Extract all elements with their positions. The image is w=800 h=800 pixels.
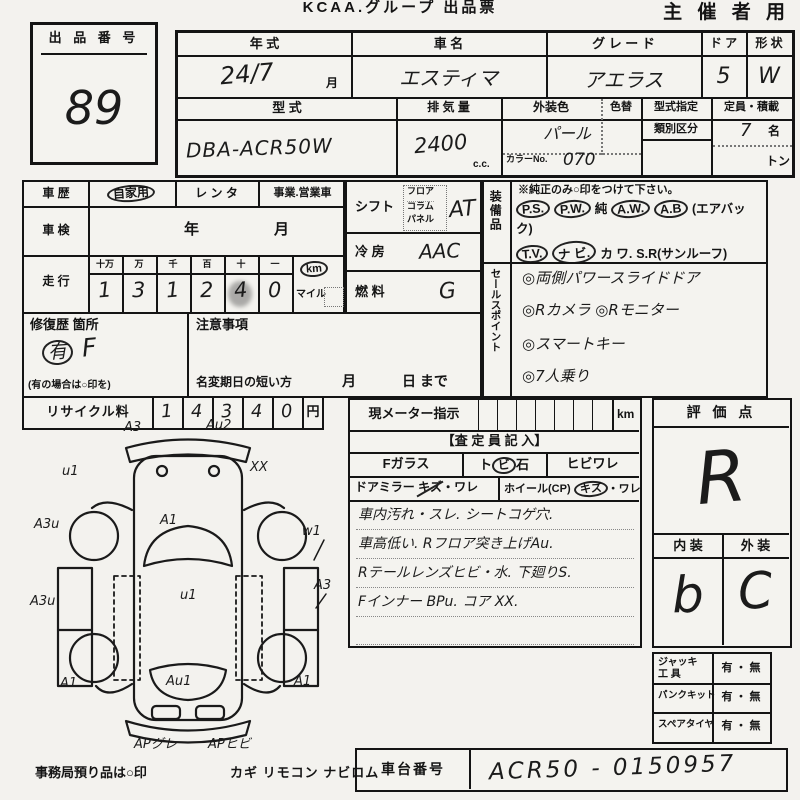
spare-tire-value: 有 ・ 無	[712, 720, 770, 732]
grade-header: グ レ ー ド	[546, 37, 701, 51]
assessor-note: 車高低い. Rフロア突き上げAu.	[358, 537, 554, 552]
mile-unit: マイル	[296, 289, 326, 300]
door-mirror-scratch-marked: キズ	[418, 481, 442, 494]
damage-diagram: A3Au2u1XXA3uA1w1A3u1A3uA1Au1A1APグレAPヒビ	[28, 418, 348, 748]
shaken-label: 車 検	[24, 224, 88, 237]
aircon-row: 冷 房 AAC	[345, 232, 482, 272]
door-mirror-label: ドアミラー	[355, 480, 415, 494]
assessor-note: Rテールレンズヒビ・水. 下廻りS.	[358, 566, 572, 581]
lot-box: 出 品 番 号 89	[30, 22, 158, 165]
capacity-value: 7	[740, 121, 751, 141]
color-no-label: カラーNo.	[506, 155, 536, 164]
fuel-label: 燃 料	[355, 285, 385, 299]
assessor-header: 【査 定 員 記 入】	[350, 434, 639, 448]
equipment-box: 装備品 ※純正のみ○印をつけて下さい。 P.S.P.W.純A.W.A.B(エアバ…	[482, 180, 768, 264]
mileage-unit-10: 十	[224, 260, 258, 270]
rename-month: 月	[342, 374, 356, 389]
shape-header: 形 状	[746, 37, 792, 50]
rename-deadline-label: 名変期日の短い方	[196, 376, 292, 389]
mileage-unit-100: 百	[190, 260, 224, 270]
mileage-label: 走 行	[24, 275, 88, 288]
damage-code: A3u	[30, 594, 55, 609]
shift-label: シフト	[355, 200, 394, 214]
aircon-label: 冷 房	[355, 245, 385, 259]
repair-note: (有の場合は○印を)	[28, 380, 111, 391]
damage-code: A1	[60, 676, 77, 691]
type-desig-header: 型式指定	[641, 101, 711, 113]
shaken-month-unit: 月	[274, 222, 289, 239]
model-value: DBA-ACR50W	[186, 134, 333, 161]
jack-tools-label-1: ジャッキ	[658, 657, 698, 668]
door-value: 5	[701, 65, 746, 89]
damage-code: A3	[314, 578, 331, 593]
history-row: 車 歴 自家用 レ ン タ 事業.営業車	[22, 180, 345, 208]
mileage-unit-1: 一	[258, 260, 292, 270]
crack-label: ヒビワレ	[546, 457, 639, 471]
displacement-value: 2400	[413, 131, 468, 159]
damage-code: A3	[124, 420, 141, 435]
spare-tire-label: スペアタイヤ	[658, 720, 714, 730]
mileage-digit: 1	[97, 278, 112, 302]
score-label: 評 価 点	[654, 405, 789, 420]
sales-line: ◎7人乗り	[522, 368, 590, 385]
chassis-value: ACR50 - 0150957	[489, 752, 737, 786]
exterior-score: C	[736, 563, 776, 621]
car-name-value: エスティマ	[351, 67, 546, 89]
lot-label: 出 品 番 号	[33, 31, 155, 45]
grade-value: アエラス	[546, 69, 701, 91]
damage-code: Au2	[206, 418, 231, 433]
stone-chip-post: 石	[516, 457, 529, 472]
fuel-row: 燃 料 G	[345, 270, 482, 314]
km-unit-circled: km	[299, 260, 328, 278]
mileage-row: 走 行 十万 万 千 百 十 一 1 3 1 2 4 0 km マイル	[22, 255, 345, 314]
history-rental: レ ン タ	[175, 187, 258, 200]
history-commercial: 事業.営業車	[258, 187, 347, 199]
door-mirror-crack: ・ワレ	[442, 480, 478, 494]
ext-color-header: 外装色	[501, 101, 601, 114]
mileage-digit: 1	[165, 278, 180, 302]
sheet-title: KCAA.グループ 出品票	[240, 0, 560, 17]
history-private: 自家用	[107, 183, 156, 203]
front-glass-label: Fガラス	[350, 457, 462, 471]
year-value: 24/7	[219, 59, 275, 90]
mileage-unit-10k: 万	[122, 260, 156, 270]
equipment-item-circled: P.W.	[553, 199, 591, 220]
shift-row: シフト フロア コラム パネル AT	[345, 180, 482, 234]
shift-options-box: フロア コラム パネル	[403, 185, 447, 231]
mileage-digit: 2	[200, 279, 214, 303]
spec-table: 年 式 車 名 グ レ ー ド ド ア 形 状 24/7 月 エスティマ アエラ…	[175, 30, 795, 178]
equipment-item-circled: P.S.	[515, 199, 550, 219]
score-box: 評 価 点 R 内 装 外 装 b C	[652, 398, 792, 648]
wheel-scratch-circled: キズ	[573, 480, 608, 498]
ext-color-value: パール	[543, 125, 591, 143]
recolor-header: 色替	[601, 101, 641, 113]
capacity-unit: 名	[768, 125, 780, 138]
displacement-header: 排 気 量	[396, 101, 501, 114]
wheel-label: ホイール(CP)	[504, 483, 571, 495]
repair-label: 修復歴 箇所	[30, 318, 99, 332]
damage-code: A1	[294, 674, 311, 689]
stone-chip-pre: ト	[479, 457, 492, 472]
equipment-item: S.R(サンルーフ)	[636, 247, 727, 261]
mileage-digit: 0	[268, 279, 282, 303]
sales-points-box: セールスポイント ◎両側パワースライドドア ◎Rカメラ ◎Rモニター ◎スマート…	[482, 262, 768, 398]
assessor-block: 現メーター指示 km 【査 定 員 記 入】 Fガラス トビ石 ヒビワレ ドアミ…	[348, 398, 642, 648]
wheel-crack: ・ワレ	[608, 483, 641, 495]
damage-code: w1	[302, 524, 321, 539]
fuel-value: G	[438, 279, 457, 305]
jack-tools-value: 有 ・ 無	[712, 662, 770, 674]
repair-location: F	[81, 333, 98, 362]
shape-value: W	[746, 65, 792, 89]
caution-label: 注意事項	[196, 318, 248, 332]
damage-code: u1	[180, 588, 197, 603]
interior-score: b	[671, 567, 705, 623]
mileage-digit: 3	[132, 279, 146, 303]
name-header: 車 名	[351, 37, 546, 51]
jack-tools-label-2: 工 具	[658, 669, 681, 680]
interior-label: 内 装	[654, 539, 722, 553]
assessor-note: 車内汚れ・スレ. シートコゲ穴.	[358, 508, 553, 523]
sales-points-label: セールスポイント	[489, 268, 501, 394]
auction-sheet: KCAA.グループ 出品票 主 催 者 用 出 品 番 号 89 年 式 車 名…	[0, 0, 800, 800]
exterior-label: 外 装	[722, 539, 789, 553]
office-items-list: カギ リモコン ナビロム	[230, 766, 379, 780]
load-unit: トン	[766, 155, 790, 168]
score-value: R	[693, 436, 750, 519]
year-unit: 月	[326, 77, 338, 90]
mileage-unit-100k: 十万	[88, 260, 122, 270]
shift-opt-panel: パネル	[407, 215, 434, 225]
history-label: 車 歴	[24, 187, 88, 200]
displacement-unit: c.c.	[473, 159, 490, 170]
equipment-item: 純	[595, 202, 608, 216]
lot-number: 89	[33, 83, 155, 134]
shaken-row: 車 検 年 月	[22, 206, 345, 257]
tools-box: ジャッキ 工 具 有 ・ 無 パンクキット 有 ・ 無 スペアタイヤ 有 ・ 無	[652, 652, 772, 744]
capacity-header: 定員・積載	[711, 101, 792, 113]
damage-code: u1	[62, 464, 79, 479]
shift-value: AT	[448, 197, 477, 223]
damage-code: APヒビ	[208, 733, 251, 752]
stone-chip-circled: ビ	[491, 456, 516, 475]
damage-code: A3u	[34, 517, 59, 532]
color-no-value: 070	[563, 151, 595, 170]
repair-caution-box: 修復歴 箇所 有 F (有の場合は○印を) 注意事項 名変期日の短い方 月 日 …	[22, 312, 482, 398]
mileage-unit-1k: 千	[156, 260, 190, 270]
aircon-value: AAC	[419, 239, 461, 262]
year-header: 年 式	[178, 37, 351, 51]
shift-opt-column: コラム	[407, 201, 434, 212]
mileage-digit: 4	[233, 278, 248, 302]
door-header: ド ア	[701, 37, 746, 50]
puncture-kit-label: パンクキット	[658, 691, 715, 701]
shift-opt-floor: フロア	[407, 187, 434, 197]
damage-code: APグレ	[134, 733, 177, 752]
equipment-item: カ ワ.	[600, 247, 632, 261]
shaken-year-unit: 年	[184, 222, 199, 239]
damage-code: A1	[160, 513, 177, 528]
repair-mark-circled: 有	[41, 339, 74, 366]
model-header: 型 式	[178, 101, 396, 115]
damage-code: XX	[250, 460, 268, 475]
equipment-item-circled: A.W.	[611, 199, 651, 220]
equipment-note: ※純正のみ○印をつけて下さい。	[518, 184, 679, 196]
class-header: 類別区分	[641, 123, 711, 135]
sales-line: ◎両側パワースライドドア	[522, 270, 699, 287]
organizer-label: 主 催 者 用	[663, 3, 790, 24]
rename-day: 日 まで	[402, 374, 448, 389]
chassis-box: 車台番号 ACR50 - 0150957	[355, 748, 788, 792]
sales-line: ◎スマートキー	[522, 336, 625, 353]
mile-checkbox	[324, 287, 344, 307]
meter-label: 現メーター指示	[350, 407, 478, 421]
assessor-note: Fインナー BPu. コア XX.	[358, 595, 518, 610]
meter-unit: km	[617, 408, 634, 421]
puncture-kit-value: 有 ・ 無	[712, 691, 770, 703]
office-items-note: 事務局預り品は○印	[35, 766, 147, 780]
damage-code: Au1	[166, 674, 191, 689]
sales-line: ◎Rカメラ ◎Rモニター	[522, 302, 679, 319]
equipment-item-circled: A.B	[654, 199, 689, 219]
equipment-label: 装備品	[488, 190, 501, 260]
